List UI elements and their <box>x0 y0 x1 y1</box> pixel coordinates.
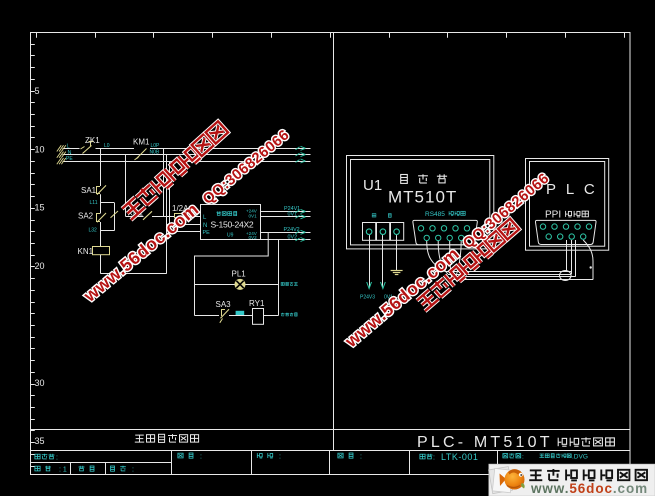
svg-text:S-150-24X2: S-150-24X2 <box>211 220 254 230</box>
svg-text:ZK1: ZK1 <box>85 136 100 145</box>
svg-text:P24V2: P24V2 <box>284 227 300 233</box>
svg-text:N: N <box>68 150 72 156</box>
svg-text:L: L <box>67 143 70 149</box>
svg-text:35: 35 <box>35 436 45 446</box>
svg-text:PE: PE <box>203 230 211 236</box>
svg-text:0V2: 0V2 <box>249 235 258 240</box>
svg-text:PE: PE <box>66 156 73 162</box>
svg-text:PL1: PL1 <box>232 270 247 279</box>
svg-text:KM1: KM1 <box>133 138 150 147</box>
svg-text:L0: L0 <box>104 143 110 149</box>
svg-text::: : <box>360 454 362 461</box>
svg-text:U9: U9 <box>227 233 234 239</box>
svg-text:PPI: PPI <box>545 210 561 221</box>
svg-text::: : <box>433 455 435 462</box>
svg-text:SA3: SA3 <box>216 300 232 309</box>
svg-text:MT510T: MT510T <box>388 188 457 207</box>
svg-text:SA2: SA2 <box>78 212 94 221</box>
svg-text:N0B: N0B <box>150 150 160 156</box>
svg-text:LTK-001: LTK-001 <box>441 452 478 462</box>
svg-text:: 1: : 1 <box>59 467 67 474</box>
svg-text:N: N <box>203 223 207 229</box>
svg-text::: : <box>132 467 134 474</box>
svg-text:30: 30 <box>35 378 45 388</box>
svg-text::: : <box>279 454 281 461</box>
svg-text:0V1: 0V1 <box>249 214 258 219</box>
svg-text:10: 10 <box>35 144 45 154</box>
svg-text:PLC- MT510T: PLC- MT510T <box>417 434 553 451</box>
svg-text:RS485: RS485 <box>425 211 445 218</box>
svg-text:U1: U1 <box>363 177 382 194</box>
svg-text:P24V3: P24V3 <box>360 295 375 301</box>
svg-text:0V2: 0V2 <box>288 234 298 240</box>
svg-text:SA1: SA1 <box>81 186 97 195</box>
svg-text:15: 15 <box>35 203 45 213</box>
svg-text::: : <box>56 455 58 462</box>
svg-text:5: 5 <box>35 86 40 96</box>
svg-text:www.56doc.com: www.56doc.com <box>530 481 648 496</box>
svg-text::: : <box>522 454 524 461</box>
svg-text:20: 20 <box>35 261 45 271</box>
svg-text:L11: L11 <box>90 200 98 206</box>
svg-text:L32: L32 <box>89 228 98 234</box>
svg-text:KN1: KN1 <box>78 247 94 256</box>
svg-text:L: L <box>203 215 207 221</box>
svg-text:RY1: RY1 <box>249 299 265 308</box>
svg-text::: : <box>200 454 202 461</box>
svg-text:.DVG: .DVG <box>572 454 588 461</box>
svg-text:0V1: 0V1 <box>288 212 298 218</box>
svg-text:L0P: L0P <box>151 143 161 149</box>
svg-text:P L C: P L C <box>546 181 598 198</box>
